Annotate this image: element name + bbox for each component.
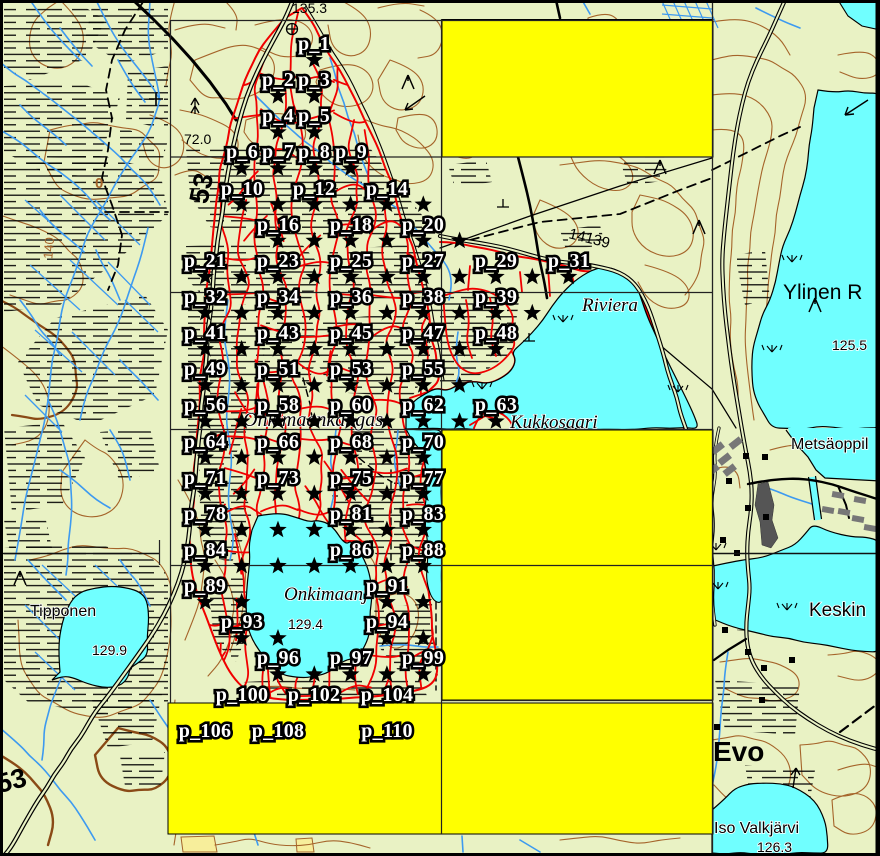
svg-text:125.5: 125.5	[832, 337, 867, 353]
svg-text:p_29: p_29	[475, 250, 517, 272]
svg-text:p_100: p_100	[216, 684, 269, 706]
svg-text:p_99: p_99	[402, 647, 444, 669]
svg-text:p_9: p_9	[335, 141, 367, 163]
svg-text:p_106: p_106	[179, 720, 232, 742]
svg-text:p_81: p_81	[330, 503, 372, 525]
svg-text:p_77: p_77	[402, 467, 444, 489]
svg-text:p_18: p_18	[330, 214, 372, 236]
svg-text:p_86: p_86	[330, 539, 372, 561]
svg-text:p_102: p_102	[288, 684, 341, 706]
svg-text:p_56: p_56	[184, 394, 226, 416]
svg-text:Metsäoppil: Metsäoppil	[791, 436, 868, 453]
svg-text:p_91: p_91	[366, 575, 408, 597]
svg-text:Evo: Evo	[713, 736, 764, 767]
svg-text:p_5: p_5	[298, 105, 330, 127]
svg-text:p_53: p_53	[330, 358, 372, 380]
svg-text:p_32: p_32	[184, 286, 226, 308]
svg-text:p_14: p_14	[366, 178, 408, 200]
svg-text:72.0: 72.0	[184, 131, 211, 147]
svg-text:p_70: p_70	[402, 431, 444, 453]
svg-text:p_47: p_47	[402, 322, 444, 344]
svg-text:p_48: p_48	[475, 322, 517, 344]
svg-text:p_96: p_96	[257, 647, 299, 669]
svg-text:Ylinen R: Ylinen R	[783, 281, 862, 304]
svg-text:p_84: p_84	[184, 539, 226, 561]
svg-text:p_36: p_36	[330, 286, 372, 308]
svg-text:p_108: p_108	[252, 720, 305, 742]
svg-text:p_89: p_89	[184, 575, 226, 597]
svg-text:p_60: p_60	[330, 394, 372, 416]
svg-text:Onkimaanj: Onkimaanj	[284, 584, 368, 605]
svg-text:p_34: p_34	[257, 286, 299, 308]
svg-text:p_41: p_41	[184, 322, 226, 344]
svg-text:p_97: p_97	[330, 647, 372, 669]
svg-text:p_49: p_49	[184, 358, 226, 380]
svg-text:p_21: p_21	[184, 250, 226, 272]
svg-text:p_23: p_23	[257, 250, 299, 272]
svg-text:p_6: p_6	[226, 141, 258, 163]
svg-text:p_75: p_75	[330, 467, 372, 489]
svg-text:p_104: p_104	[361, 684, 414, 706]
svg-text:p_66: p_66	[257, 431, 299, 453]
svg-text:p_2: p_2	[262, 69, 294, 91]
svg-text:0: 0	[95, 175, 103, 192]
svg-text:p_27: p_27	[402, 250, 444, 272]
svg-text:p_71: p_71	[184, 467, 226, 489]
svg-text:Iso Valkjärvi: Iso Valkjärvi	[714, 820, 799, 837]
svg-text:p_63: p_63	[475, 394, 517, 416]
svg-text:p_12: p_12	[293, 178, 335, 200]
svg-text:Kukkosaari: Kukkosaari	[509, 412, 598, 433]
svg-text:Tipponen: Tipponen	[30, 603, 96, 620]
svg-text:126.3: 126.3	[757, 839, 792, 855]
svg-text:p_20: p_20	[402, 214, 444, 236]
svg-text:p_38: p_38	[402, 286, 444, 308]
svg-text:p_8: p_8	[298, 141, 330, 163]
svg-text:p_83: p_83	[402, 503, 444, 525]
svg-text:p_55: p_55	[402, 358, 444, 380]
svg-text:p_25: p_25	[330, 250, 372, 272]
svg-text:p_73: p_73	[257, 467, 299, 489]
svg-text:p_1: p_1	[298, 33, 330, 55]
svg-text:p_62: p_62	[402, 394, 444, 416]
svg-text:p_58: p_58	[257, 394, 299, 416]
svg-text:p_3: p_3	[298, 69, 330, 91]
svg-text:p_68: p_68	[330, 431, 372, 453]
svg-text:p_88: p_88	[402, 539, 444, 561]
svg-text:p_39: p_39	[475, 286, 517, 308]
svg-text:p_31: p_31	[548, 250, 590, 272]
svg-text:Keskin: Keskin	[809, 600, 866, 621]
svg-text:129.9: 129.9	[92, 642, 127, 658]
svg-text:p_43: p_43	[257, 322, 299, 344]
svg-text:p_110: p_110	[361, 720, 413, 742]
svg-text:p_78: p_78	[184, 503, 226, 525]
svg-text:p_64: p_64	[184, 431, 226, 453]
svg-text:129.4: 129.4	[288, 616, 323, 632]
svg-text:53: 53	[184, 170, 220, 206]
svg-text:p_45: p_45	[330, 322, 372, 344]
svg-text:p_93: p_93	[221, 611, 263, 633]
svg-text:p_7: p_7	[262, 141, 294, 163]
svg-text:140: 140	[40, 237, 57, 260]
svg-text:p_94: p_94	[366, 611, 408, 633]
svg-text:Riviera: Riviera	[581, 295, 638, 316]
svg-text:p_16: p_16	[257, 214, 299, 236]
svg-text:p_4: p_4	[262, 105, 294, 127]
svg-text:p_51: p_51	[257, 358, 299, 380]
svg-text:p_10: p_10	[221, 178, 263, 200]
